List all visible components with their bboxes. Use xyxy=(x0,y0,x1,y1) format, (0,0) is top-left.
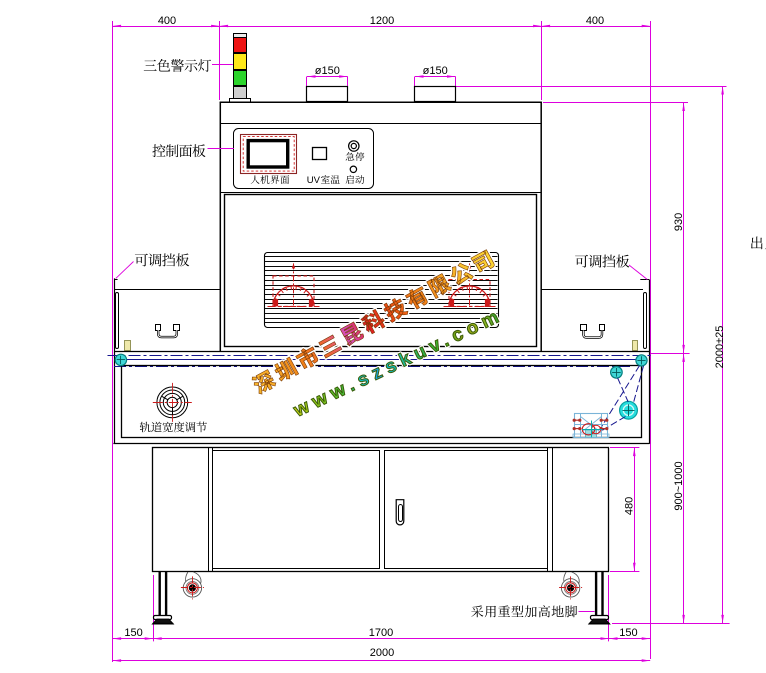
svg-text:150: 150 xyxy=(124,627,142,639)
svg-text:900~1000: 900~1000 xyxy=(673,461,685,510)
svg-text:2000: 2000 xyxy=(370,647,394,659)
svg-text:480: 480 xyxy=(624,497,636,515)
svg-text:ø150: ø150 xyxy=(315,65,340,77)
svg-text:1200: 1200 xyxy=(370,15,394,27)
svg-text:930: 930 xyxy=(673,213,685,231)
svg-text:400: 400 xyxy=(586,15,604,27)
svg-text:UV: UV xyxy=(307,175,321,186)
svg-text:150: 150 xyxy=(619,627,637,639)
svg-text:1700: 1700 xyxy=(369,627,393,639)
svg-text:ø150: ø150 xyxy=(423,65,448,77)
svg-text:2000±25: 2000±25 xyxy=(714,326,726,369)
svg-text:400: 400 xyxy=(158,15,176,27)
